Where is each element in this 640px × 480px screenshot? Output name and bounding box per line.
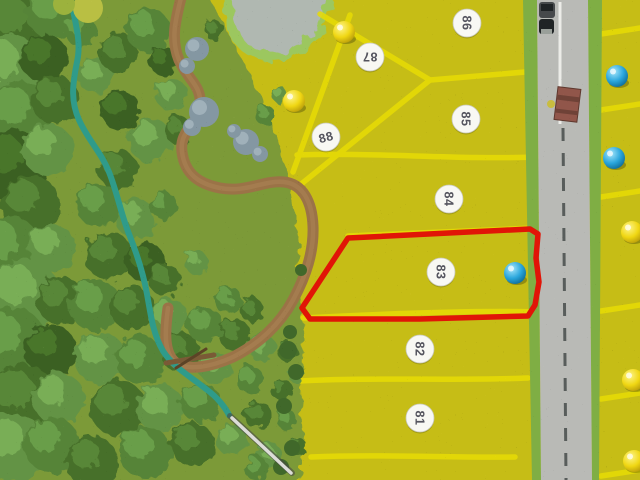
lot-marker-label: 87 xyxy=(363,50,378,64)
lot-marker: 88 xyxy=(312,123,340,153)
scale-model-photo: 8887868584838281 xyxy=(0,0,640,480)
lot-marker-label: 84 xyxy=(442,192,456,207)
lot-marker-label: 83 xyxy=(434,265,448,280)
lot-marker-label: 85 xyxy=(459,112,473,127)
lot-marker-label: 86 xyxy=(460,16,474,31)
lot-marker: 82 xyxy=(406,335,434,365)
lot-marker-label: 82 xyxy=(413,342,427,357)
lot-marker: 84 xyxy=(435,185,463,215)
lot-marker: 81 xyxy=(406,404,434,434)
lot-marker: 85 xyxy=(452,105,480,135)
lot-marker: 86 xyxy=(453,9,481,39)
lot-marker: 87 xyxy=(356,43,384,73)
grain-light xyxy=(0,0,640,480)
lot-marker: 83 xyxy=(427,258,455,288)
lot-marker-label: 81 xyxy=(413,411,427,426)
